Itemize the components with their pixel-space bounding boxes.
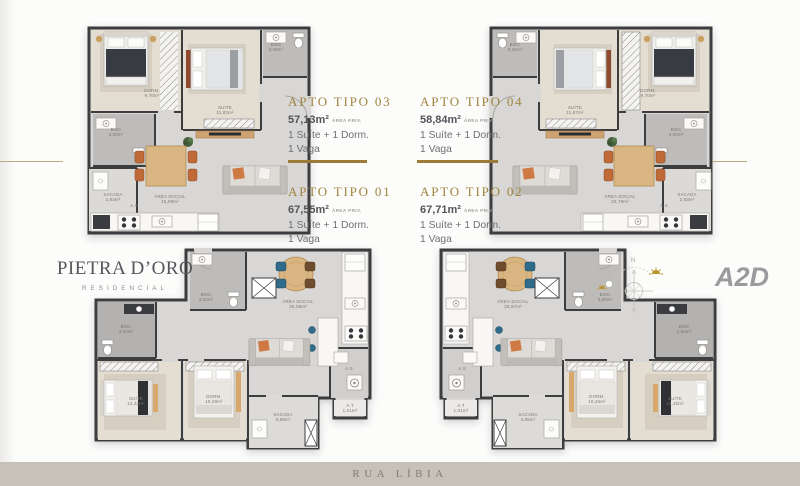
shaft xyxy=(305,420,317,446)
unit-title: APTO TIPO 03 xyxy=(288,94,422,110)
plant xyxy=(183,137,193,147)
floorplan-tipo02: ÁREA SOCIAL25,97m² BWC3,00m² BWC3,60m² S… xyxy=(441,248,715,448)
balcony-table xyxy=(544,420,559,438)
edge-vignette xyxy=(0,0,16,462)
kitchen-sink xyxy=(345,298,365,309)
bed-double xyxy=(577,366,617,418)
svg-text:SACADA2,83m²: SACADA2,83m² xyxy=(677,192,696,202)
unit-parking: 1 Vaga xyxy=(288,143,422,157)
entry-door-gap xyxy=(194,248,212,253)
unit-area: 58,84m²ÁREA PRIV. xyxy=(420,114,554,126)
svg-text:SUÍTE11,82m²: SUÍTE11,82m² xyxy=(216,105,234,115)
door-gap xyxy=(607,358,623,362)
svg-text:DORM.10,28m²: DORM.10,28m² xyxy=(205,394,223,404)
unit-parking: 1 Vaga xyxy=(420,143,554,157)
brand-name: PIETRA D’ORO xyxy=(40,258,210,280)
stove xyxy=(345,326,367,341)
door-gap xyxy=(626,110,642,114)
svg-text:SACADA2,83m²: SACADA2,83m² xyxy=(103,192,122,202)
dining-table xyxy=(614,146,654,186)
door-gap xyxy=(633,358,649,362)
svg-text:SACADA3,98m²: SACADA3,98m² xyxy=(273,412,292,422)
svg-text:SUÍTE12,32m²: SUÍTE12,32m² xyxy=(127,396,145,406)
stove xyxy=(660,215,682,230)
gold-rule-right xyxy=(713,161,747,162)
svg-text:DORM.9,70m²: DORM.9,70m² xyxy=(144,88,160,98)
unit-area: 67,55m²ÁREA PRIV. xyxy=(288,204,422,216)
unit-title: APTO TIPO 01 xyxy=(288,184,422,200)
wardrobe xyxy=(160,32,178,110)
compass-north-label: N xyxy=(631,258,635,264)
fridge xyxy=(446,254,466,271)
unit-rooms: 1 Suíte + 1 Dorm. xyxy=(420,129,554,143)
unit-rooms: 1 Suíte + 1 Dorm. xyxy=(288,129,422,143)
svg-text:A.S: A.S xyxy=(345,366,353,371)
brand-logo: PIETRA D’ORO RESIDENCIAL xyxy=(40,258,210,292)
area-note: ÁREA PRIV. xyxy=(332,208,362,213)
door-gap xyxy=(259,84,263,102)
unit-info-tipo02: APTO TIPO 02 67,71m²ÁREA PRIV. 1 Suíte +… xyxy=(420,184,554,247)
svg-text:SUÍTE12,32m²: SUÍTE12,32m² xyxy=(666,396,684,406)
svg-text:SUÍTE11,67m²: SUÍTE11,67m² xyxy=(566,105,584,115)
wardrobe xyxy=(100,362,158,371)
stove xyxy=(118,215,140,230)
unit-title: APTO TIPO 04 xyxy=(420,94,554,110)
bed-double xyxy=(652,32,696,86)
brand-subtitle: RESIDENCIAL xyxy=(40,285,210,292)
floorplan-tipo03: DORM.9,70m² SUÍTE11,82m² BWC3,09m² BWC3,… xyxy=(89,28,311,233)
svg-text:A.S: A.S xyxy=(130,203,138,208)
wardrobe xyxy=(204,119,254,128)
street-label: RUA LÍBIA xyxy=(0,462,800,486)
area-note: ÁREA PRIV. xyxy=(332,118,362,123)
tv-console xyxy=(196,131,254,138)
door-gap xyxy=(266,394,282,398)
marketing-board: DORM.9,70m² SUÍTE11,82m² BWC3,09m² BWC3,… xyxy=(0,0,800,486)
washer xyxy=(449,375,464,390)
bed-double xyxy=(104,32,148,86)
wardrobe xyxy=(653,362,711,371)
door-gap xyxy=(529,394,545,398)
area-note: ÁREA PRIV. xyxy=(464,208,494,213)
street-bar: RUA LÍBIA xyxy=(0,462,800,486)
unit-title: APTO TIPO 02 xyxy=(420,184,554,200)
fridge xyxy=(198,214,218,231)
bed-suite xyxy=(653,380,711,416)
svg-text:DORM.9,70m²: DORM.9,70m² xyxy=(640,88,656,98)
laundry-sink xyxy=(463,352,477,363)
sofa xyxy=(249,339,310,366)
unit-area: 57,13m²ÁREA PRIV. xyxy=(288,114,422,126)
svg-text:DORM.10,26m²: DORM.10,26m² xyxy=(588,394,606,404)
area-note: ÁREA PRIV. xyxy=(464,118,494,123)
unit-parking: 1 Vaga xyxy=(288,233,422,247)
unit-area: 67,71m²ÁREA PRIV. xyxy=(420,204,554,216)
bed-suite xyxy=(186,48,243,90)
unit-info-tipo01: APTO TIPO 01 67,55m²ÁREA PRIV. 1 Suíte +… xyxy=(288,184,422,247)
sofa xyxy=(501,339,562,366)
washer xyxy=(347,375,362,390)
stove xyxy=(445,326,467,341)
balcony-table xyxy=(252,420,267,438)
shaft xyxy=(494,420,506,446)
unit-info-tipo03: APTO TIPO 03 57,13m²ÁREA PRIV. 1 Suíte +… xyxy=(288,94,422,157)
gold-bar-col1 xyxy=(288,160,367,163)
sofa xyxy=(223,166,287,194)
door-gap xyxy=(158,110,174,114)
kitchen-sink xyxy=(446,298,466,309)
svg-text:SACADA3,95m²: SACADA3,95m² xyxy=(518,412,537,422)
bed-suite xyxy=(554,48,611,90)
sunrise-icon xyxy=(649,268,663,275)
unit-parking: 1 Vaga xyxy=(420,233,554,247)
fridge xyxy=(583,214,603,231)
wardrobe xyxy=(622,32,640,110)
unit-info-tipo04: APTO TIPO 04 58,84m²ÁREA PRIV. 1 Suíte +… xyxy=(420,94,554,157)
unit-rooms: 1 Suíte + 1 Dorm. xyxy=(420,219,554,233)
fridge xyxy=(345,254,365,271)
svg-text:A.S: A.S xyxy=(458,366,466,371)
laundry-sink xyxy=(334,352,348,363)
gold-rule-left xyxy=(0,161,63,162)
bed-double xyxy=(194,366,234,418)
gold-bar-col2 xyxy=(417,160,498,163)
balcony-table xyxy=(696,172,711,190)
sink xyxy=(684,118,704,129)
unit-rooms: 1 Suíte + 1 Dorm. xyxy=(288,219,422,233)
sink xyxy=(599,254,619,265)
plant xyxy=(607,137,617,147)
kitchen-sink xyxy=(152,216,172,227)
door-gap xyxy=(162,358,178,362)
svg-text:A.S: A.S xyxy=(660,203,668,208)
tv-console xyxy=(546,131,604,138)
door-gap xyxy=(188,358,204,362)
balcony-table xyxy=(93,172,108,190)
partner-logo-a2d: A2D xyxy=(704,262,780,293)
kitchen-sink xyxy=(628,216,648,227)
entry-door-gap xyxy=(599,248,617,253)
dining-table xyxy=(146,146,186,186)
